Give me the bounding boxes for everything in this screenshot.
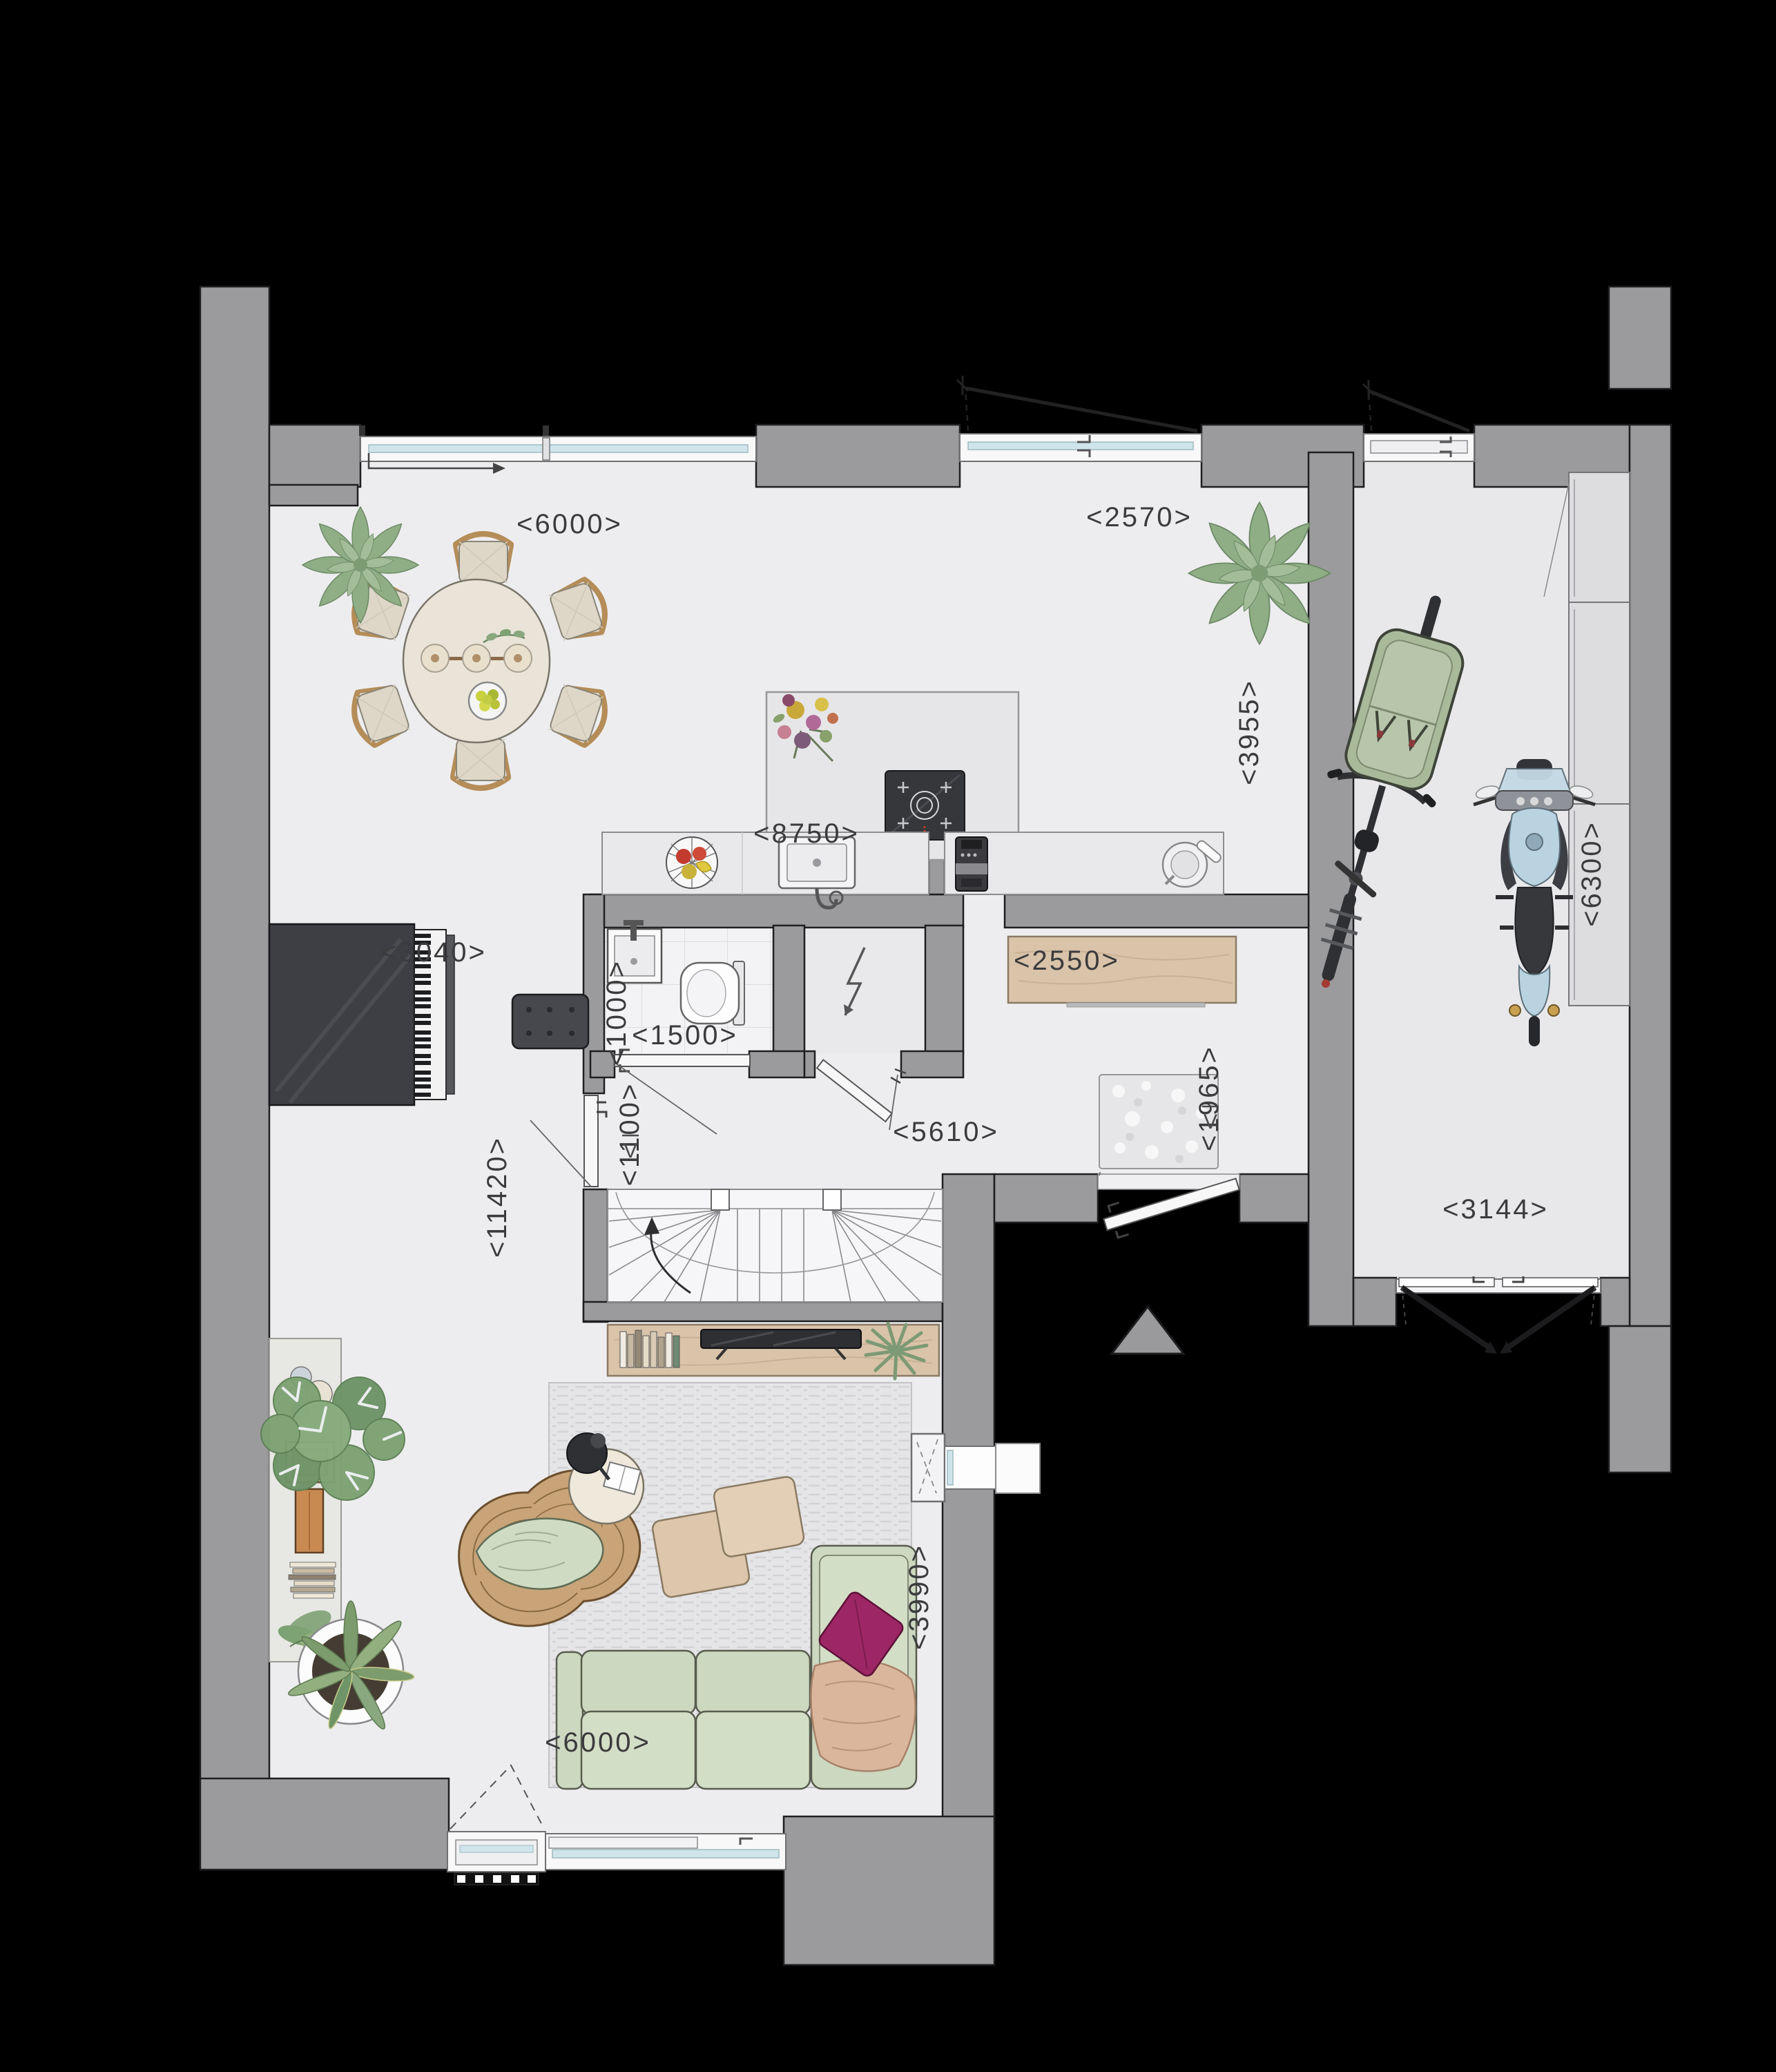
- wall-tech-bottom-a: [804, 1051, 815, 1077]
- dining-chair: [452, 739, 509, 788]
- wall-garage-right: [1630, 425, 1671, 1326]
- candles: [421, 644, 532, 672]
- wall-garage-lower-right: [1609, 1326, 1671, 1473]
- svg-text:V: V: [624, 1140, 637, 1162]
- dim-hall-width: <5610>: [893, 1117, 999, 1147]
- vent-marker-entry: V: [1202, 1106, 1219, 1133]
- wall-tech-bottom-b: [901, 1051, 963, 1077]
- wall-left: [200, 287, 269, 1870]
- floorplan-canvas: <6000><2570><3955><8750><3040><1000><150…: [0, 0, 1776, 2072]
- dim-bench: <2550>: [1014, 946, 1120, 976]
- wall-bottom-left: [200, 1778, 449, 1870]
- wall-living-right: [943, 1174, 994, 1820]
- wall-entry-b: [1239, 1174, 1309, 1222]
- dim-garage-length: <6300>: [1576, 821, 1607, 927]
- floor-tech-closet: [804, 925, 925, 1053]
- dim-dining-width: <6000>: [517, 509, 623, 539]
- dim-living-rug: <6000>: [545, 1727, 651, 1758]
- wall-tech-right: [925, 925, 963, 1053]
- wall-toilet-bottom-b: [749, 1051, 804, 1077]
- tv-board: [608, 1323, 939, 1379]
- dim-kitchen-window: <2570>: [1086, 502, 1193, 533]
- succulent-dining: [302, 507, 418, 623]
- fruit-bowl: [469, 682, 506, 720]
- toilet: [681, 961, 744, 1025]
- staircase: [608, 1189, 943, 1302]
- dim-living-right: <3990>: [904, 1544, 934, 1650]
- wall-house-garage: [1309, 452, 1353, 1326]
- dim-toilet-depth: <1500>: [632, 1020, 738, 1051]
- fruit-basket: [666, 837, 717, 888]
- wall-top-left-step: [269, 485, 358, 506]
- succulent-kitchen: [1189, 503, 1331, 644]
- wall-entry-a: [994, 1174, 1098, 1222]
- wall-stub-top-right: [1609, 287, 1671, 389]
- dim-hall-passage: <1100>: [615, 1082, 645, 1187]
- bottom-sliding-door: [546, 1834, 786, 1870]
- dim-garage-width: <3144>: [1442, 1194, 1549, 1225]
- dim-toilet-width: <1000>: [601, 959, 632, 1066]
- cooktop: [885, 771, 965, 840]
- ventilation-grille: [454, 1873, 539, 1885]
- svg-text:V: V: [1204, 1111, 1217, 1133]
- wall-toilet-tech-divider: [773, 925, 804, 1053]
- wall-top-pier: [756, 425, 960, 487]
- wall-top-left: [269, 425, 360, 487]
- vent-marker-hall: V: [622, 1135, 639, 1162]
- coffee-table: [713, 1476, 805, 1558]
- dining-chair: [455, 534, 512, 583]
- piano-bench: [512, 995, 588, 1048]
- wall-counter-back-left: [590, 894, 963, 928]
- floorplan-svg: <6000><2570><3955><8750><3040><1000><150…: [0, 0, 1776, 2072]
- coffee-machine: [956, 837, 987, 891]
- dim-hall-depth: <1965>: [1194, 1045, 1224, 1151]
- wall-garage-bottom-b: [1601, 1278, 1630, 1326]
- stair-post: [823, 1189, 841, 1210]
- wall-counter-back-right: [1005, 894, 1309, 928]
- dim-living-length: <11420>: [482, 1136, 512, 1258]
- dim-left-zone: <3040>: [380, 937, 487, 968]
- dim-kitchen-depth: <3955>: [1234, 679, 1264, 785]
- stair-post: [711, 1189, 729, 1210]
- wall-stairs-bottom: [583, 1302, 943, 1321]
- wall-bottom-right: [784, 1816, 994, 1965]
- dim-interior-width: <8750>: [753, 818, 860, 849]
- wall-garage-bottom-a: [1353, 1278, 1396, 1326]
